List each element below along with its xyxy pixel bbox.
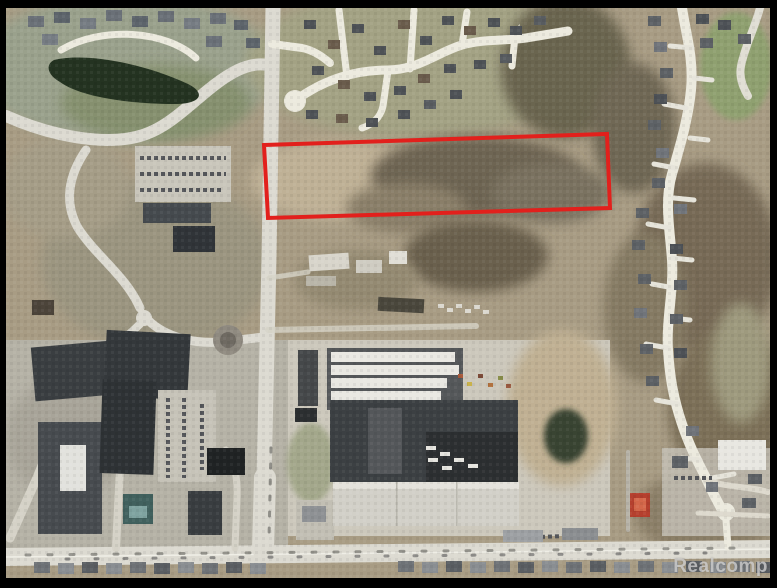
photo-grain bbox=[6, 8, 770, 578]
aerial-photo: Realcomp bbox=[6, 8, 770, 578]
realcomp-watermark: Realcomp bbox=[673, 556, 768, 578]
image-border-frame: Realcomp bbox=[0, 0, 777, 588]
aerial-photo-canvas bbox=[6, 8, 770, 578]
